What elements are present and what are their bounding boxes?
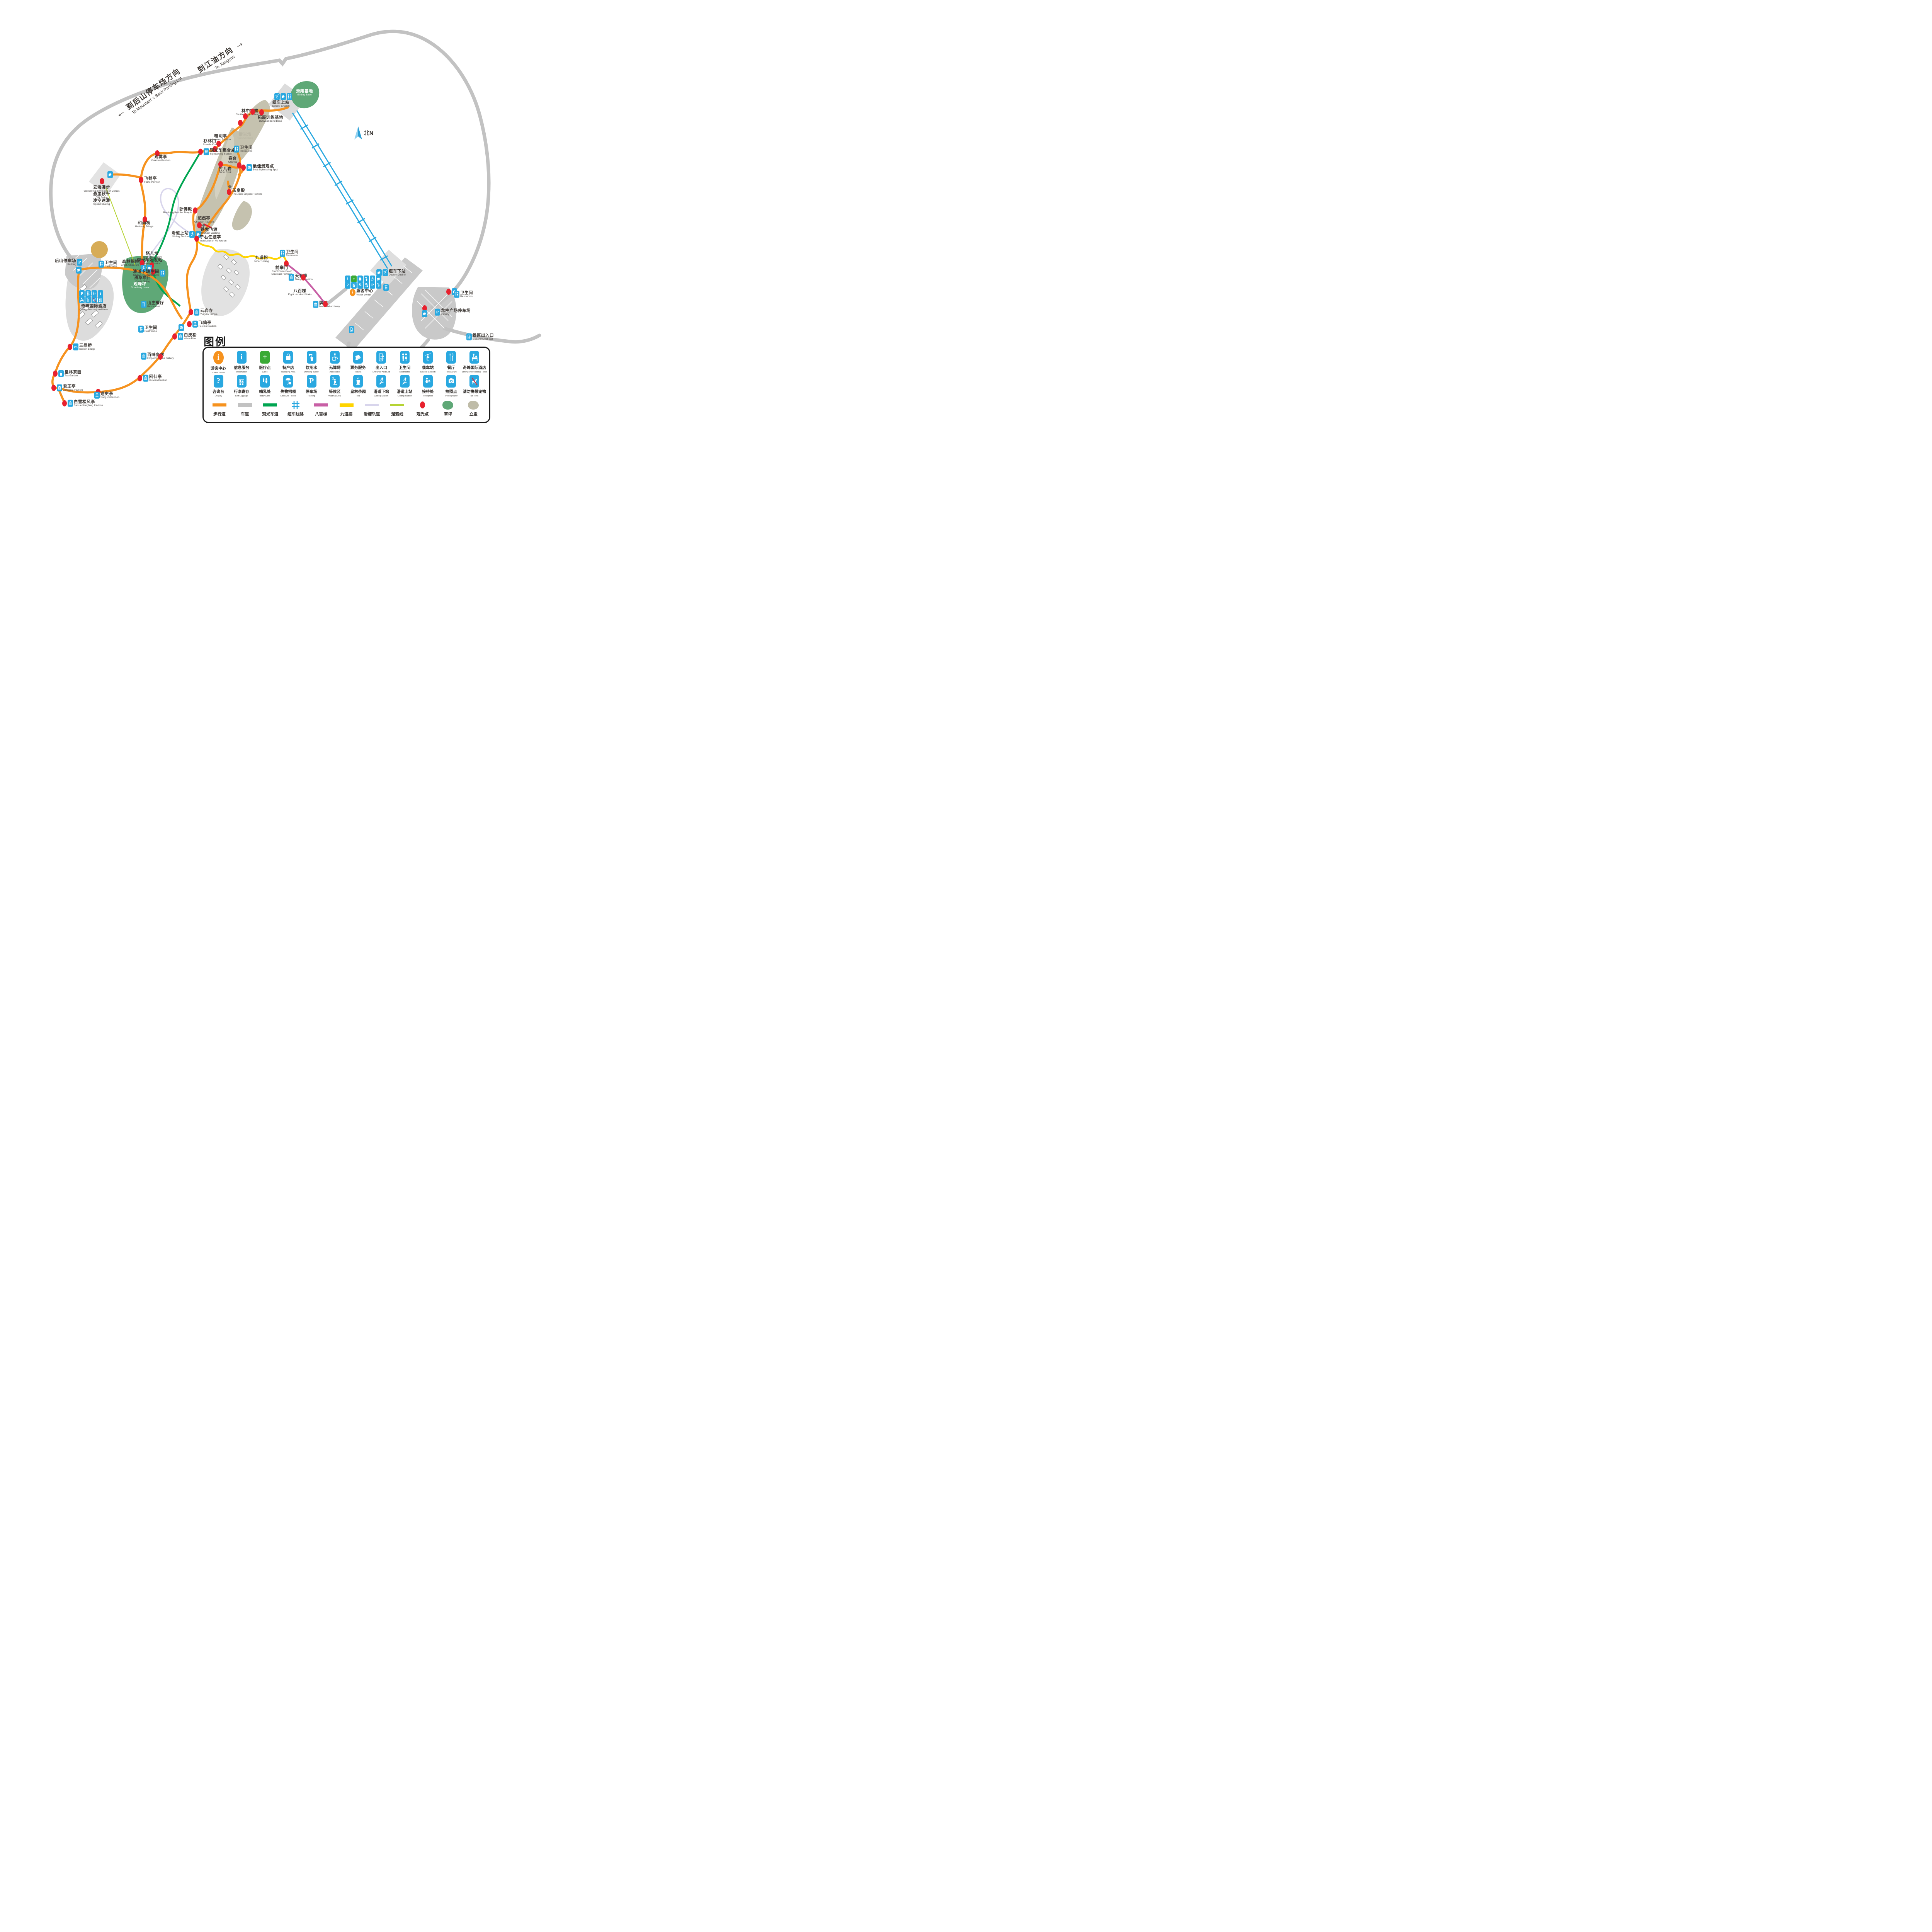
photo-point: [179, 324, 184, 331]
gliding-base-label: 滑翔基地Gliding Base: [296, 89, 313, 96]
legend-swatch: [420, 400, 425, 410]
legend-lines-row: 步行道车道观光车道缆车线路八百梯九道拐滑槽轨道溜索线观光点草坪立崖: [207, 400, 486, 417]
legend-box: i游客中心Visitor centeri信息服务Information+医疗点C…: [202, 347, 490, 423]
eight-hundred-stairs-path: [286, 264, 325, 304]
legend-line-1: 车道: [232, 400, 258, 417]
legend-swatch: [238, 400, 252, 410]
shanlinkou: 杉林口Shanlin Kou: [203, 139, 217, 146]
cliff-chain-walking: 铁索飞渡Cliff Chain Walking: [198, 228, 219, 235]
qifeng-hotel: 奇峰国际酒店Qifeng International Hotel: [80, 304, 109, 311]
camera-icon: [247, 164, 252, 171]
cable-top-icons: [274, 93, 292, 100]
forest-adventure-label: 森林探险Forest Adventure: [120, 260, 139, 267]
entrance-and-exit-label: 景区出入口Entrance And Exit: [473, 333, 494, 340]
outward-bound-base: 拓展训练基地Outward-Bund Base: [258, 116, 283, 122]
bridge-icon: [73, 344, 78, 350]
tea-garden-label: 皇林茶园Tea Garden: [65, 370, 82, 377]
door-icon: [466, 333, 472, 340]
restroom-icon: [454, 291, 459, 298]
wait-icon: [330, 375, 340, 388]
ivc-icon: i: [213, 351, 224, 364]
ticket-icon: [76, 267, 82, 274]
legend-swatch: [314, 400, 328, 410]
yuyouren-inscription-label: 于右任题字Inscription of Yu Youren: [200, 235, 226, 242]
paifang-dot: [323, 301, 328, 307]
viewpoint-dot: [62, 400, 67, 406]
fork-icon: [446, 351, 456, 364]
restrooms-mid-label: 卫生间Restrooms: [145, 326, 157, 333]
restrooms-houshan: 卫生间Restrooms: [99, 261, 117, 268]
nine-turning-label: 九道拐Nine Turning: [254, 256, 269, 263]
camera-icon: [446, 375, 456, 388]
best-sightseeing-spot-label: 最佳景观点Best Sightseeing Spot: [253, 164, 278, 171]
pletter-icon: P: [307, 375, 316, 388]
bus-icon: [204, 148, 209, 155]
legend-item-left-luggage: 行李寄存Left Luggage: [230, 375, 253, 397]
temple-icon: [194, 309, 199, 316]
sanpin-bridge-label: 三品桥Sanpin Bridge: [79, 344, 95, 350]
legend-item-reception: 接待处Reception: [416, 375, 439, 397]
ticket-icon: [107, 171, 113, 178]
baixue-pavilion-label: 白雪松风亭Baixue Songfeng Pavilion: [74, 400, 103, 407]
hotel-icons-2: [79, 296, 103, 303]
chairlift-icon: [423, 351, 433, 364]
nodog-icon: [469, 375, 479, 388]
wheelchair-icon: [330, 351, 340, 364]
tea-garden: 皇林茶园Tea Garden: [53, 370, 82, 377]
restroom-icon: [383, 284, 389, 291]
clouds-dot: [100, 178, 104, 184]
luggage-icon: [98, 296, 103, 303]
heshang-bridge-label: 和尚桥Heshang Bridge: [135, 221, 153, 228]
tan-circle: [91, 241, 108, 258]
ticket-houshan: [76, 267, 82, 274]
legend-line-10: 立崖: [461, 400, 486, 417]
white-pine-label: 白皮松White Pine: [184, 333, 197, 340]
viewpoint-dot: [187, 321, 192, 327]
outward-bound-base-label: 拓展训练基地Outward-Bund Base: [258, 116, 283, 122]
pavilion-icon: [68, 400, 73, 407]
legend-line-4: 八百梯: [308, 400, 334, 417]
gliding-base: 滑翔基地Gliding Base: [296, 89, 313, 96]
visitor-center: i游客中心Visitor center: [350, 289, 373, 296]
legend-line-8: 观光点: [410, 400, 435, 417]
umbrella-icon: [364, 282, 369, 289]
legend-item-waiting-area: 等候区Waiting Area: [323, 375, 346, 397]
visitor-center-label: 游客中心Visitor center: [356, 289, 373, 296]
legend-item-photography: 拍照点Photography: [440, 375, 463, 397]
luggage-icon: [237, 375, 247, 388]
chuntai: 春台Chuntai: [228, 156, 237, 163]
restroom-icon: [234, 146, 239, 153]
sightseeing-station-mid-label: 观光车集合点Sightseeing Station: [210, 148, 235, 155]
legend-item-qifeng-international-hotel: 奇峰国际酒店Qifeng International Hotel: [463, 351, 486, 374]
ticket-west: [422, 310, 427, 317]
best-sightseeing-spot: 最佳景观点Best Sightseeing Spot: [241, 164, 278, 171]
fork-icon: [141, 301, 146, 308]
legend-facilities-row1: i游客中心Visitor centeri信息服务Information+医疗点C…: [207, 351, 486, 374]
restrooms-temple-label: 卫生间Restrooms: [146, 270, 159, 277]
feihe-pavilion-label: 飞鹤亭Feihe Pavilion: [144, 177, 160, 184]
temple-icon: [313, 301, 318, 308]
longzhu-parking-label: 龙柱广场停车场Parking: [441, 309, 471, 316]
baiwei-dot: [158, 354, 163, 360]
tianyin-pavilion: 天音亭Tianyin Pavilion: [289, 274, 313, 281]
zipline: [106, 188, 135, 265]
restroom-icon: [287, 93, 292, 100]
longzhu-parking: P龙柱广场停车场Parking: [435, 309, 471, 316]
restrooms-right: 卫生间Restrooms: [454, 291, 473, 298]
cliff-chain-walking-label: 铁索飞渡Cliff Chain Walking: [198, 228, 219, 235]
legend-line-6: 滑槽轨道: [359, 400, 384, 417]
shanlinkou-label: 杉林口Shanlin Kou: [203, 139, 217, 146]
restrooms-houshan-label: 卫生间Restrooms: [105, 261, 117, 268]
yuyouren-inscription: 于右任题字Inscription of Yu Youren: [194, 235, 226, 242]
ski-icon: [189, 231, 195, 238]
restrooms-temple: 卫生间Restrooms: [146, 270, 165, 277]
viewpoint-dot: [198, 149, 203, 155]
viewpoint-dot: [193, 207, 197, 214]
legend-item-entrance-and-exit: 出入口Entrance And Exit: [370, 351, 393, 374]
legend-item-restrooms: 卫生间Restrooms: [393, 351, 416, 374]
shanzhuang-restaurant: 山庄餐厅Restaurant: [141, 301, 164, 308]
legend-item-double-chairlift: 缆车站Double Chairlift: [416, 351, 439, 374]
desk-icon: [423, 375, 433, 388]
viewpoint-dot: [100, 178, 104, 184]
question-icon: ?: [214, 375, 223, 388]
feixian-pavilion: 飞仙亭Feixian Pavilion: [187, 321, 216, 328]
daer-rock: 打儿岩Da'er Rock: [219, 167, 232, 174]
legend-swatch: [340, 400, 354, 410]
door-icon: [376, 351, 386, 364]
emperor-statue-gallery: 百味皇林Emperor Statue Gallery: [141, 353, 174, 360]
junwang-pavilion: 君王亭Junwang Pavilion: [51, 384, 83, 391]
restrooms-nineturn: 卫生间Restrooms: [280, 250, 299, 257]
restroom-icon: [160, 270, 165, 277]
restrooms-top-label: 卫生间Restrooms: [240, 146, 253, 153]
restrooms-nineturn-label: 卫生间Restrooms: [286, 250, 299, 257]
qifeng-hotel-label: 奇峰国际酒店Qifeng International Hotel: [80, 304, 109, 311]
water-icon: [307, 351, 316, 364]
legend-item-drinking-water: 饮用水Drinking Water: [300, 351, 323, 374]
jade-emperor-temple: 玉皇殿The Jade Emperor Temple: [227, 189, 262, 196]
tianyin-dot: [301, 274, 306, 281]
viewpoint-dot: [138, 375, 142, 381]
reclining-buddha-label: 卧佛殿Reclining Buddha Temple: [163, 207, 192, 214]
trail-dot-1: [250, 109, 255, 115]
trail-dot-3: [238, 120, 243, 126]
legend-line-0: 步行道: [207, 400, 232, 417]
speed-skating-label: 凌空速滑Speed Skating: [93, 199, 110, 206]
rock-climbing: 攀岩场Rock Climbing: [237, 133, 253, 139]
viewpoint-dot: [227, 189, 231, 195]
feihe-pavilion: 飞鹤亭Feihe Pavilion: [139, 177, 160, 184]
restroom-icon: [138, 326, 144, 333]
temple-patch: [201, 249, 250, 316]
door-icon: [349, 326, 354, 333]
cable-top-station-label: 缆车上站Double Chairlift: [272, 100, 289, 107]
sightseeing-station-mid: 观光车集合点Sightseeing Station: [198, 148, 235, 155]
wait-icon: [376, 282, 381, 289]
legend-item-restaurant: 餐厅Restaurant: [440, 351, 463, 374]
camera-icon: [179, 324, 184, 331]
restroom-icon: [99, 261, 104, 268]
legend-swatch: [390, 400, 404, 410]
huixian-pavilion-label: 回仙亭Huixian Pavilion: [149, 375, 167, 382]
restrooms-mid: 卫生间Restrooms: [138, 326, 157, 333]
cable-bottom-station: 缆车下站Double Chairlift: [376, 269, 406, 276]
fork-icon: [85, 296, 91, 303]
bag-icon: [283, 351, 293, 364]
legend-line-5: 九道拐: [334, 400, 359, 417]
viewpoint-dot: [139, 177, 143, 183]
viewpoint-dot: [53, 371, 58, 377]
legend-line-2: 观光车道: [257, 400, 283, 417]
daer-rock-label: 打儿岩Da'er Rock: [219, 167, 232, 174]
cross-icon: +: [260, 351, 270, 364]
viewpoint-dot: [172, 333, 177, 340]
sanpin-bridge: 三品桥Sanpin Bridge: [68, 344, 95, 350]
yunyan-temple-label: 云岩寺Yunyan Temple: [200, 309, 218, 316]
pavilion-icon: [57, 384, 62, 391]
legend-item-gliding-station: 滑道下站Gliding Station: [370, 375, 393, 397]
legend-item-parking: P停车场Parking: [300, 375, 323, 397]
legend-swatch: [291, 400, 300, 410]
legend-item-shopping-area: 特产店Shopping Area: [277, 351, 300, 374]
pavilion-icon: [143, 375, 148, 382]
temple-icon: [141, 353, 146, 360]
tea-icon: [353, 375, 363, 388]
restroom-icon: [400, 351, 410, 364]
baby-icon: [260, 375, 270, 388]
legend-item-tickets: 票务服务Tickets: [347, 351, 370, 374]
pavilion-icon: [289, 274, 294, 281]
chairlift-line: [293, 111, 392, 269]
viewpoint-dot: [189, 309, 193, 315]
tea-icon: [58, 370, 64, 377]
chuntai-label: 春台Chuntai: [228, 156, 237, 163]
restroom-icon: [280, 250, 285, 257]
huixian-pavilion: 回仙亭Huixian Pavilion: [138, 375, 167, 382]
legend-line-3: 缆车线路: [283, 400, 308, 417]
legend-facilities-row2: ?咨询台Enquiry行李寄存Left Luggage哺乳处Baby Care失…: [207, 375, 486, 397]
viewpoint-dot: [241, 165, 246, 171]
speed-skating: 凌空速滑Speed Skating: [93, 199, 110, 206]
restrooms-top: 卫生间Restrooms: [234, 146, 253, 153]
gliding-station-top-label: 滑道上站Gliding Station: [172, 231, 189, 238]
legend-item-accessible: 无障碍Accessible: [323, 351, 346, 374]
legend-item-enquiry: ?咨询台Enquiry: [207, 375, 230, 397]
jade-emperor-temple-label: 玉皇殿The Jade Emperor Temple: [232, 189, 262, 196]
cable-top-station: 缆车上站Double Chairlift: [272, 100, 289, 107]
clouds-ticket: [107, 171, 113, 178]
songshi-pavilion-label: 送史亭Songshi Pavilion: [100, 392, 119, 399]
pletter-icon: P: [77, 259, 82, 266]
legend-item-information: i信息服务Information: [230, 351, 253, 374]
viewpoint-dot: [238, 120, 243, 126]
nodog-icon: [92, 296, 97, 303]
legend-item-no-pets: 请勿携带宠物No Pets: [463, 375, 486, 397]
viewpoint-dot: [301, 274, 306, 281]
viewpoint-dot: [323, 301, 328, 307]
guanwu-pavilion: 观雾亭Guanwu Pavilion: [151, 155, 170, 162]
restrooms-strip: [383, 284, 389, 291]
heshang-bridge: 和尚桥Heshang Bridge: [135, 221, 153, 228]
exit-strip: [349, 326, 354, 333]
legend-item-clinic: +医疗点Clinic: [253, 351, 277, 374]
legend-item-tea: 皇林茶园Tea: [347, 375, 370, 397]
junwang-pavilion-label: 君王亭Junwang Pavilion: [63, 384, 83, 391]
bed-icon: [79, 296, 85, 303]
cliff-east-blob: [232, 201, 252, 230]
compass-icon: [354, 126, 362, 140]
guanfeng-lawn-label: 观峰坪Guanfeng Lawn: [131, 282, 149, 289]
visitor-icons-2: ?P: [345, 282, 381, 289]
legend-line-9: 草坪: [435, 400, 461, 417]
reclining-buddha: 卧佛殿Reclining Buddha Temple: [163, 207, 197, 214]
ivc-icon: i: [350, 289, 355, 296]
cable-bottom-station-label: 缆车下站Double Chairlift: [389, 269, 406, 276]
ticket-icon: [353, 351, 363, 364]
legend-swatch: [442, 400, 453, 410]
legend-item-gliding-station: 滑道上站Gliding Station: [393, 375, 416, 397]
viewpoint-dot: [243, 113, 248, 119]
baixue-pavilion: 白雪松风亭Baixue Songfeng Pavilion: [62, 400, 103, 407]
ski-icon: [400, 375, 410, 388]
guanwu-pavilion-label: 观雾亭Guanwu Pavilion: [151, 155, 170, 162]
pavilion-icon: [94, 392, 100, 399]
north-arrow: 北N: [354, 126, 373, 140]
viewpoint-dot: [68, 344, 72, 350]
viewpoint-dot: [446, 289, 451, 295]
legend-item-lost-and-found: 失物招领Lost And Found: [277, 375, 300, 397]
bed-icon: [469, 351, 479, 364]
memorial-archway-label: 牌坊Memorial archway: [319, 301, 340, 308]
pletter-icon: P: [435, 309, 440, 316]
rock-climbing-label: 攀岩场Rock Climbing: [237, 133, 253, 139]
ticket-icon: [376, 269, 382, 276]
songshi-pavilion: 送史亭Songshi Pavilion: [94, 392, 119, 399]
umbrella-icon: [283, 375, 293, 388]
viewpoint-dot: [250, 109, 255, 115]
pletter-icon: P: [370, 282, 375, 289]
ski-icon: [376, 375, 386, 388]
legend-swatch: [213, 400, 226, 410]
legend-item-visitor-center: i游客中心Visitor center: [207, 351, 230, 374]
eight-hundred-stairs: 八百梯Eight Hundred Stairs: [288, 289, 312, 296]
trail-dot-2: [243, 113, 248, 119]
houshan-parking-label: 后山停车场Parking: [55, 259, 76, 266]
baby-icon: [357, 282, 363, 289]
scenic-area-map: 到江油方向→ To Jiangyou ←到后山停车场方向 To Mountain…: [0, 0, 543, 436]
chairlift-icon: [383, 269, 388, 276]
legend-swatch: [263, 400, 277, 410]
legend-swatch: [365, 400, 379, 410]
question-icon: ?: [345, 282, 350, 289]
legend-line-7: 溜索线: [384, 400, 410, 417]
entrance-and-exit: 景区出入口Entrance And Exit: [466, 333, 494, 340]
ticket-icon: [281, 93, 286, 100]
viewpoint-dot: [259, 109, 264, 116]
legend-title: 图例: [204, 333, 227, 349]
nine-turning: 九道拐Nine Turning: [254, 256, 269, 263]
guanfeng-lawn: 观峰坪Guanfeng Lawn: [131, 282, 149, 289]
white-pine: 白皮松White Pine: [172, 333, 197, 340]
houshan-parking: 后山停车场ParkingP: [55, 259, 82, 266]
luggage-icon: [351, 282, 357, 289]
ticket-icon: [422, 310, 427, 317]
yunyan-temple: 云岩寺Yunyan Temple: [189, 309, 218, 316]
legend-item-baby-care: 哺乳处Baby Care: [253, 375, 277, 397]
info-icon: i: [237, 351, 247, 364]
feixian-pavilion-label: 飞仙亭Feixian Pavilion: [199, 321, 216, 328]
pavilion-icon: [192, 321, 198, 328]
eight-hundred-stairs-label: 八百梯Eight Hundred Stairs: [288, 289, 312, 296]
restrooms-right-label: 卫生间Restrooms: [460, 291, 473, 298]
shanzhuang-restaurant-label: 山庄餐厅Restaurant: [147, 301, 164, 308]
main-road: [51, 31, 539, 369]
viewpoint-dot: [158, 354, 163, 360]
viewpoint-dot: [194, 236, 199, 242]
pavilion-icon: [178, 333, 183, 340]
chairlift-icon: [274, 93, 280, 100]
viewpoint-dot: [51, 385, 56, 391]
legend-swatch: [468, 400, 479, 410]
